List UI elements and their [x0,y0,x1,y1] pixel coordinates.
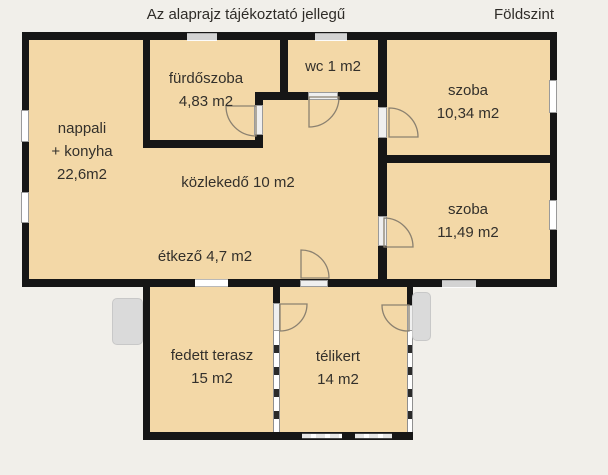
window-living-left-2 [21,192,29,223]
door-terrace-to-wintergarden [273,303,280,331]
label-wintergarden-area: 14 m2 [316,368,360,391]
window-wc-top [315,33,347,41]
label-hallway: közlekedő 10 m2 [181,171,294,194]
window-room2-right [549,200,557,230]
window-wall-wintergarden-left [273,331,280,432]
window-wintergarden-bottom-2 [355,433,392,439]
window-room2-bottom [442,280,476,288]
label-bathroom-name: fürdőszoba [169,67,243,90]
label-living-kitchen-line2: + konyha [51,140,112,163]
step-left [112,298,143,345]
label-room2-name: szoba [437,198,498,221]
window-room1-right [549,80,557,113]
label-wc: wc 1 m2 [305,55,361,78]
label-room1-area: 10,34 m2 [437,102,500,125]
label-covered-terrace-name: fedett terasz [171,344,254,367]
window-wall-wintergarden-right [407,331,413,432]
label-living-kitchen-line1: nappali [51,117,112,140]
door-hall-to-wintergarden [300,280,328,287]
window-living-left-1 [21,110,29,142]
door-room1 [378,107,387,138]
wall-top [22,32,557,40]
window-bathroom-top [187,33,217,41]
label-living-kitchen-area: 22,6m2 [51,163,112,186]
door-bathroom [254,105,263,135]
label-wintergarden: télikert 14 m2 [316,345,360,391]
floor-label: Földszint [494,6,554,23]
wall-hall-rooms-lower [378,246,387,287]
step-right [412,292,431,341]
wall-terrace-left [143,287,150,440]
label-room1: szoba 10,34 m2 [437,79,500,125]
wall-bathroom-wc-divider [280,40,288,100]
wall-bathroom-bottom [143,140,263,148]
label-dining: étkező 4,7 m2 [158,245,252,268]
wall-bathroom-right-lower [255,134,263,148]
wall-bathroom-left [143,40,150,148]
floor-plan: Az alaprajz tájékoztató jellegű Földszin… [0,0,608,475]
opening-dining-to-terrace [195,279,228,287]
wall-left [22,32,29,287]
wall-bottom [22,279,557,287]
label-living-kitchen: nappali + konyha 22,6m2 [51,117,112,186]
window-wintergarden-bottom-1 [302,433,342,439]
wall-hall-rooms-upper [378,40,387,108]
label-room2: szoba 11,49 m2 [437,198,498,244]
plan-disclaimer: Az alaprajz tájékoztató jellegű [147,6,345,23]
door-room2 [378,216,387,246]
wall-terrace-wintergarden-divider-stub [273,287,280,303]
label-bathroom-area: 4,83 m2 [169,90,243,113]
label-wintergarden-name: télikert [316,345,360,368]
door-wc [308,92,338,100]
wall-hall-rooms-middle [378,137,387,216]
wall-rooms-divider [378,155,557,163]
label-room1-name: szoba [437,79,500,102]
label-covered-terrace: fedett terasz 15 m2 [171,344,254,390]
label-bathroom: fürdőszoba 4,83 m2 [169,67,243,113]
label-room2-area: 11,49 m2 [437,221,498,244]
label-covered-terrace-area: 15 m2 [171,367,254,390]
